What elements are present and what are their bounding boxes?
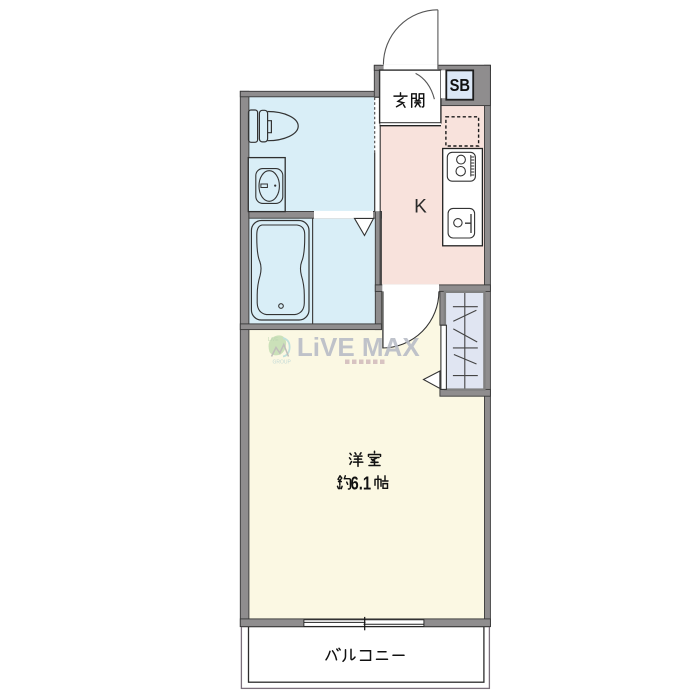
svg-text:GROUP: GROUP: [273, 359, 292, 365]
svg-text:6.1: 6.1: [351, 473, 372, 494]
svg-text:LiVE: LiVE: [268, 337, 279, 343]
svg-text:LiVE MAX: LiVE MAX: [297, 332, 420, 362]
svg-text:SB: SB: [450, 76, 470, 95]
svg-text:K: K: [414, 197, 427, 218]
